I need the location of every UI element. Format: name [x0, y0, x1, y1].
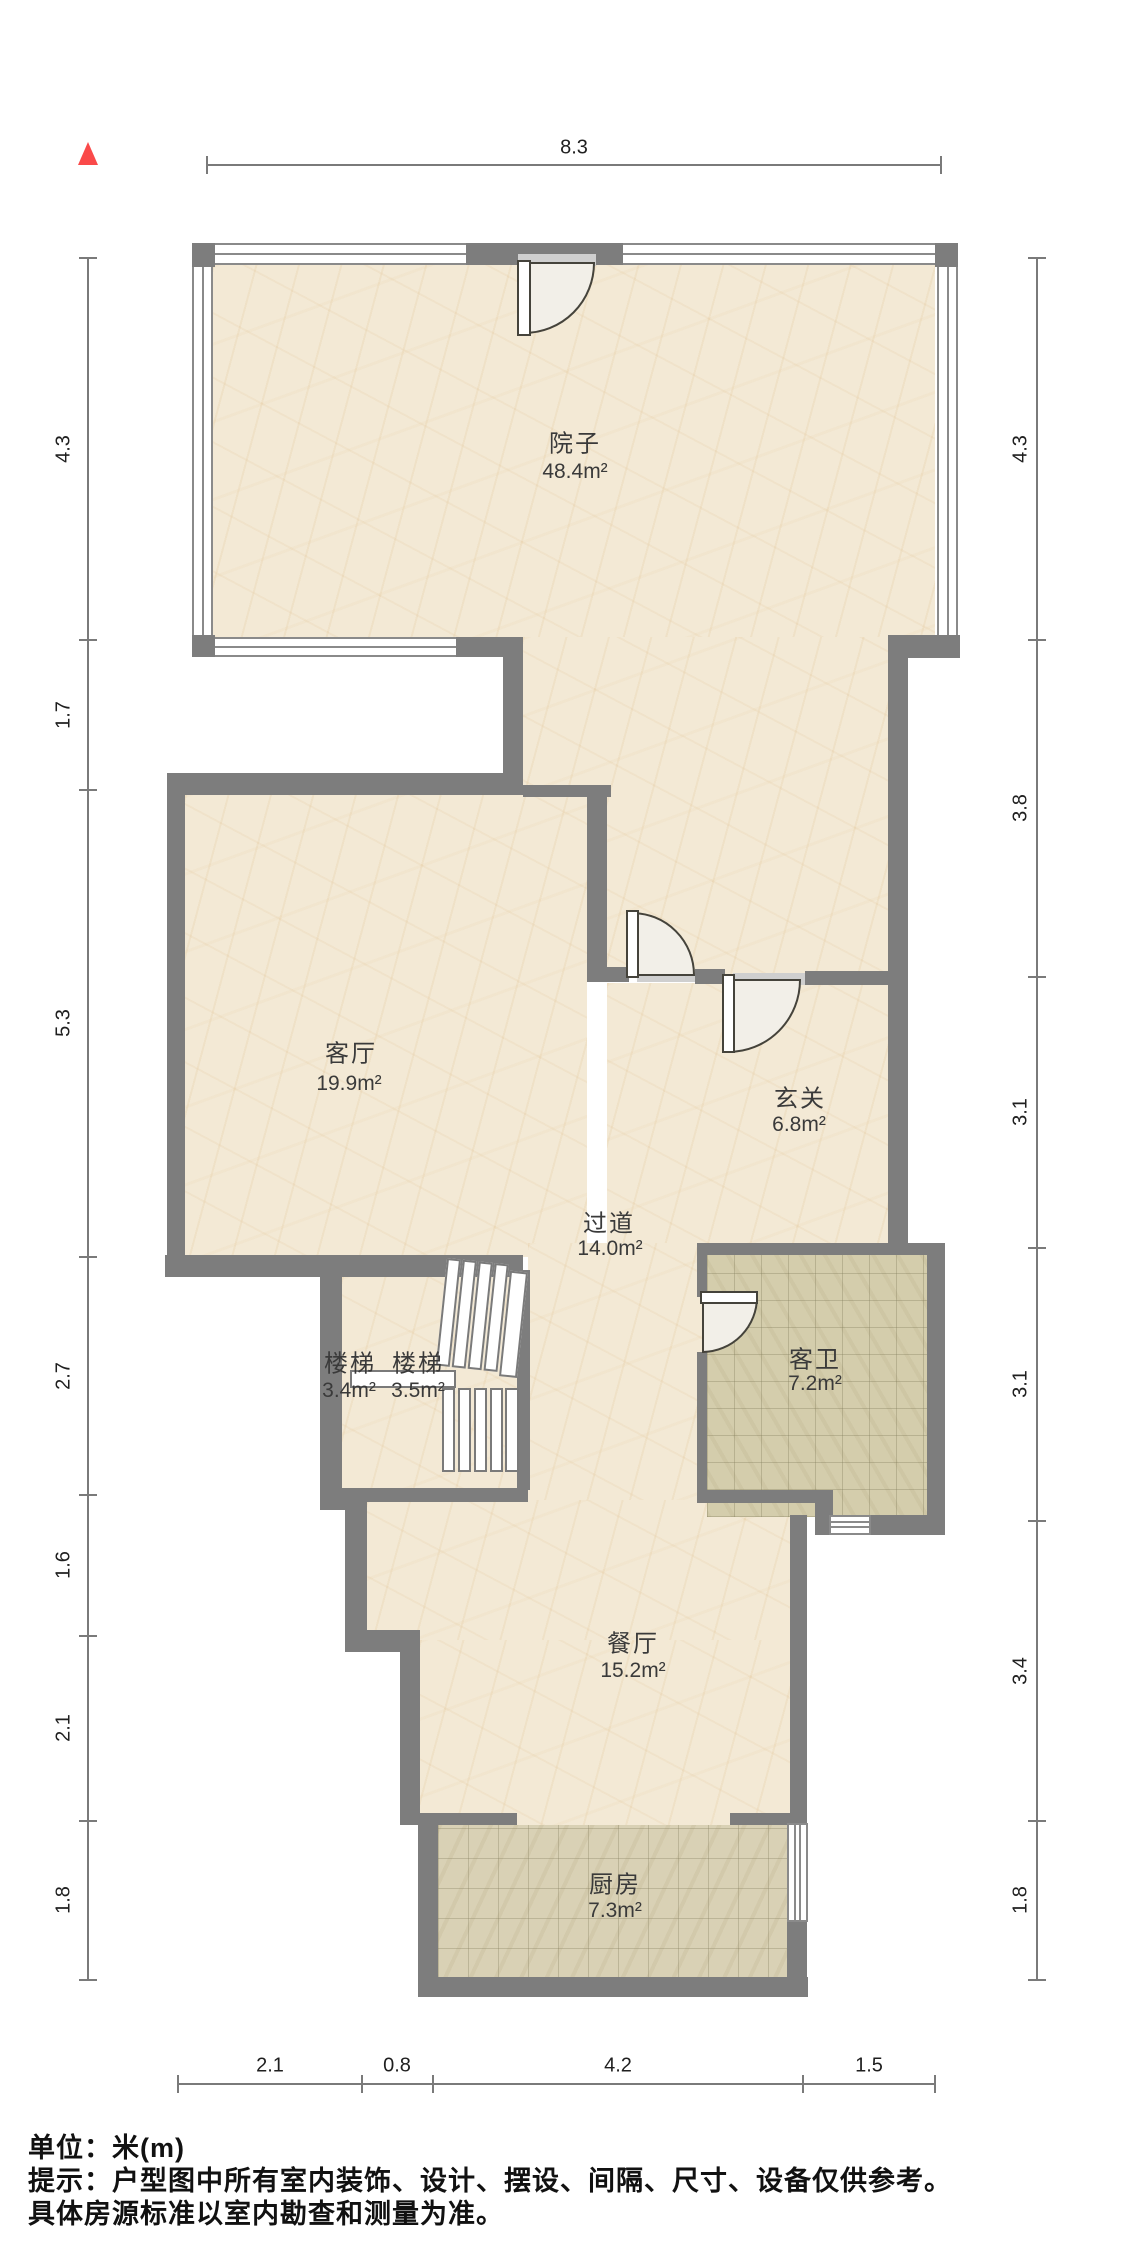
room-area-bathroom: 7.2m²: [788, 1372, 842, 1396]
dim-tick: [934, 2075, 936, 2093]
window-bottom: [213, 637, 458, 657]
dim-tick: [79, 1979, 97, 1981]
room-area-hallway: 14.0m²: [577, 1237, 642, 1261]
dim-tick: [79, 257, 97, 259]
wall-bath-left: [697, 1352, 707, 1498]
dimension-label: 3.8: [1010, 794, 1033, 822]
room-label-stairs-2: 楼梯: [392, 1344, 444, 1379]
wall-right-exterior: [888, 645, 908, 1245]
wall-entry: [805, 971, 890, 985]
stair-tread: [505, 1388, 519, 1472]
wall-segment: [345, 1500, 367, 1632]
dimension-label: 1.6: [53, 1551, 76, 1579]
door-swing-icon-bathroom: [696, 1288, 764, 1358]
room-area-living: 19.9m²: [316, 1072, 381, 1096]
wall-bath-bottom: [697, 1490, 817, 1503]
dimension-label: 3.1: [1010, 1098, 1033, 1126]
wall-segment: [400, 1630, 420, 1825]
dimension-label: 1.8: [1010, 1886, 1033, 1914]
dim-tick: [361, 2075, 363, 2093]
footer-disclaimer-2: 具体房源标准以室内勘查和测量为准。: [28, 2192, 504, 2231]
wall-segment: [503, 655, 523, 775]
dim-tick: [802, 2075, 804, 2093]
dim-line-right: [1036, 258, 1038, 1981]
dim-tick: [1028, 976, 1046, 978]
wall-living-right: [587, 785, 607, 982]
dimension-label: 2.1: [256, 2055, 284, 2078]
stair-tread: [490, 1388, 503, 1472]
floor-plan-canvas: 院子 48.4m² 客厅 19.9m² 玄关 6.8m² 过道 14.0m² 客…: [0, 0, 1125, 2242]
dimension-label: 4.2: [604, 2055, 632, 2078]
room-label-courtyard: 院子: [549, 424, 601, 459]
door-swing-icon-entry-left: [623, 908, 703, 986]
dim-tick: [940, 156, 942, 174]
wall-stairs-bottom: [358, 1488, 528, 1502]
dimension-label: 1.8: [53, 1886, 76, 1914]
room-area-entrance: 6.8m²: [772, 1113, 826, 1137]
dim-tick: [79, 1635, 97, 1637]
dim-tick: [1028, 1979, 1046, 1981]
dimension-label: 2.1: [53, 1714, 76, 1742]
wall-living-top: [167, 773, 523, 795]
dimension-label: 5.3: [53, 1009, 76, 1037]
room-label-living: 客厅: [325, 1034, 377, 1069]
wall-bath-right: [927, 1243, 945, 1535]
wall-corner-tr: [935, 243, 958, 267]
dim-tick: [79, 639, 97, 641]
room-label-bathroom: 客卫: [789, 1340, 841, 1375]
room-label-dining: 餐厅: [607, 1624, 659, 1659]
dim-tick: [1028, 1820, 1046, 1822]
dim-tick: [1028, 639, 1046, 641]
dim-tick: [177, 2075, 179, 2093]
wall-corner-bl: [192, 635, 215, 657]
room-label-kitchen: 厨房: [589, 1865, 641, 1900]
dimension-label: 4.3: [53, 435, 76, 463]
dim-tick: [432, 2075, 434, 2093]
stair-tread: [474, 1388, 487, 1472]
dim-tick: [1028, 1520, 1046, 1522]
wall-segment: [456, 637, 523, 657]
dim-tick: [206, 156, 208, 174]
dim-tick: [79, 1820, 97, 1822]
dim-tick: [79, 1494, 97, 1496]
wall-kitchen-left: [418, 1813, 438, 1997]
stairs-lower-flight: [442, 1388, 520, 1474]
wall-bottom-exterior: [418, 1977, 808, 1997]
window-kitchen: [787, 1823, 808, 1922]
window-left: [192, 265, 213, 637]
room-area-dining: 15.2m²: [600, 1659, 665, 1683]
dimension-label: 8.3: [560, 137, 588, 160]
room-area-stairs-1: 3.4m²: [322, 1379, 376, 1403]
room-area-stairs-2: 3.5m²: [391, 1379, 445, 1403]
wall-kitchen-top: [438, 1813, 517, 1825]
floor-living-room: [185, 795, 587, 1257]
room-label-entrance: 玄关: [774, 1079, 826, 1114]
dimension-label: 3.1: [1010, 1370, 1033, 1398]
dimension-label: 1.5: [855, 2055, 883, 2078]
dim-line-left: [87, 258, 89, 1981]
wall-living-left: [167, 773, 185, 1277]
dimension-label: 2.7: [53, 1362, 76, 1390]
dim-tick: [1028, 1247, 1046, 1249]
dim-tick: [79, 1256, 97, 1258]
dim-tick: [1028, 257, 1046, 259]
dimension-label: 3.4: [1010, 1657, 1033, 1685]
dimension-label: 4.3: [1010, 435, 1033, 463]
room-area-kitchen: 7.3m²: [588, 1899, 642, 1923]
door-swing-icon-entry-right: [719, 971, 803, 1055]
floor-dining-upper: [367, 1500, 793, 1642]
door-swing-icon-gate: [516, 259, 600, 339]
window-bathroom: [829, 1515, 871, 1535]
wall-corner-tl: [192, 243, 215, 267]
dimension-label: 0.8: [383, 2055, 411, 2078]
dim-line-top: [207, 164, 941, 166]
dimension-label: 1.7: [53, 701, 76, 729]
room-area-courtyard: 48.4m²: [542, 460, 607, 484]
dim-line-bottom: [178, 2083, 935, 2085]
stairs-upper-flight: [435, 1258, 528, 1378]
dim-tick: [79, 789, 97, 791]
window-right: [937, 265, 958, 637]
wall-dining-right: [790, 1515, 807, 1825]
room-label-stairs-1: 楼梯: [324, 1344, 376, 1379]
north-arrow-icon: [78, 142, 98, 165]
stair-tread: [458, 1388, 471, 1472]
room-label-hallway: 过道: [583, 1204, 635, 1239]
wall-bath-top: [697, 1243, 945, 1255]
